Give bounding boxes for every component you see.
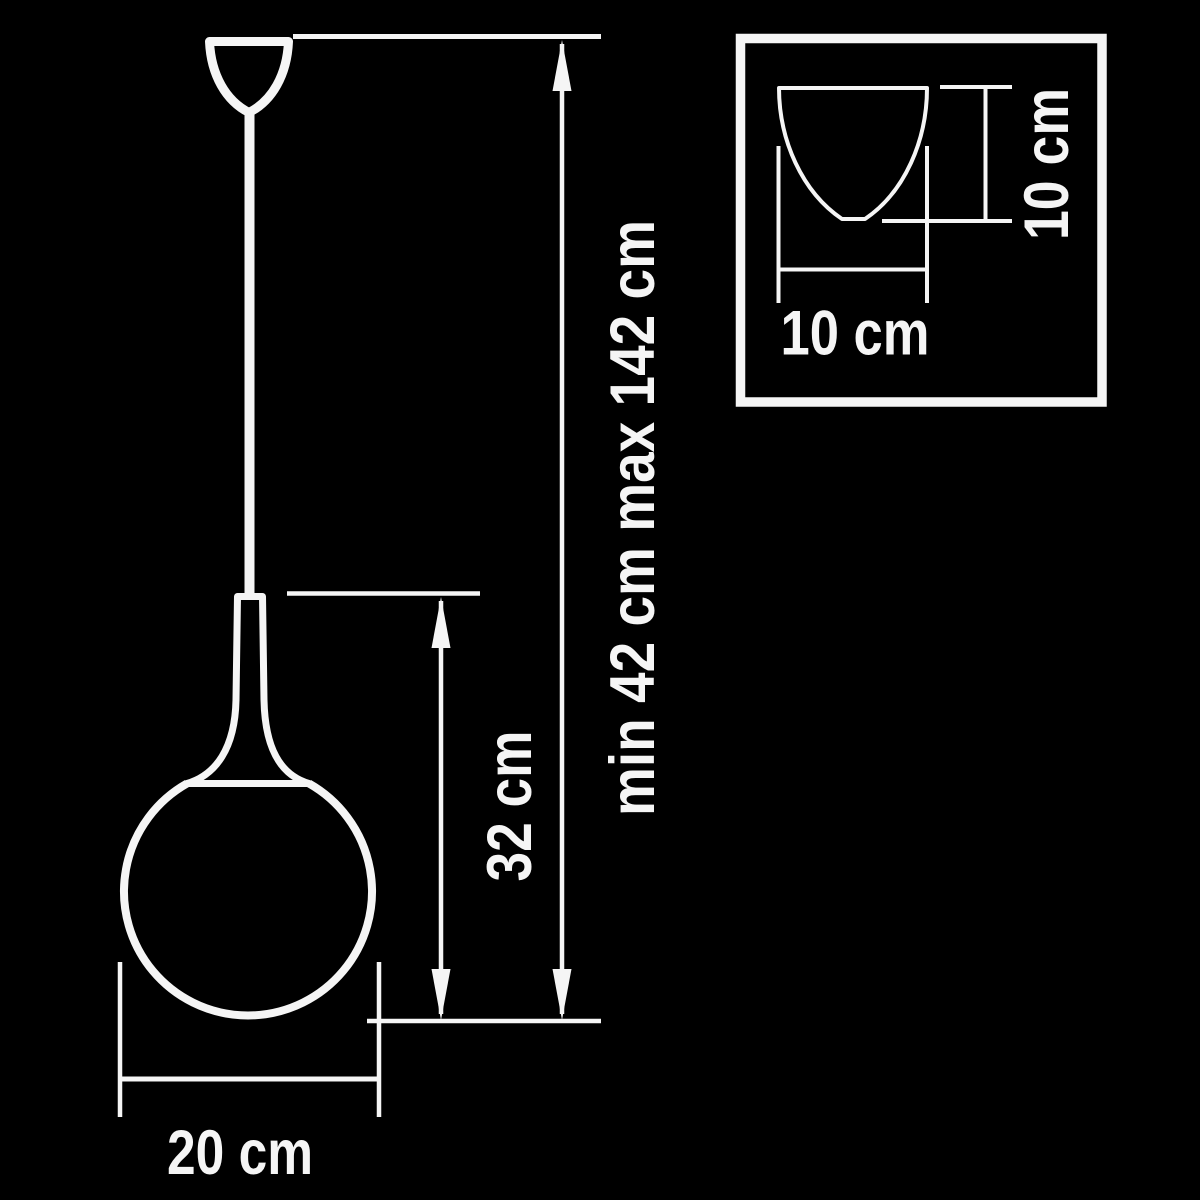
svg-text:32 cm: 32 cm — [475, 731, 545, 882]
svg-text:min 42 cm max 142 cm: min 42 cm max 142 cm — [598, 220, 668, 816]
svg-text:10 cm: 10 cm — [781, 299, 930, 369]
svg-text:10 cm: 10 cm — [1012, 88, 1082, 240]
svg-text:20 cm: 20 cm — [167, 1118, 313, 1188]
